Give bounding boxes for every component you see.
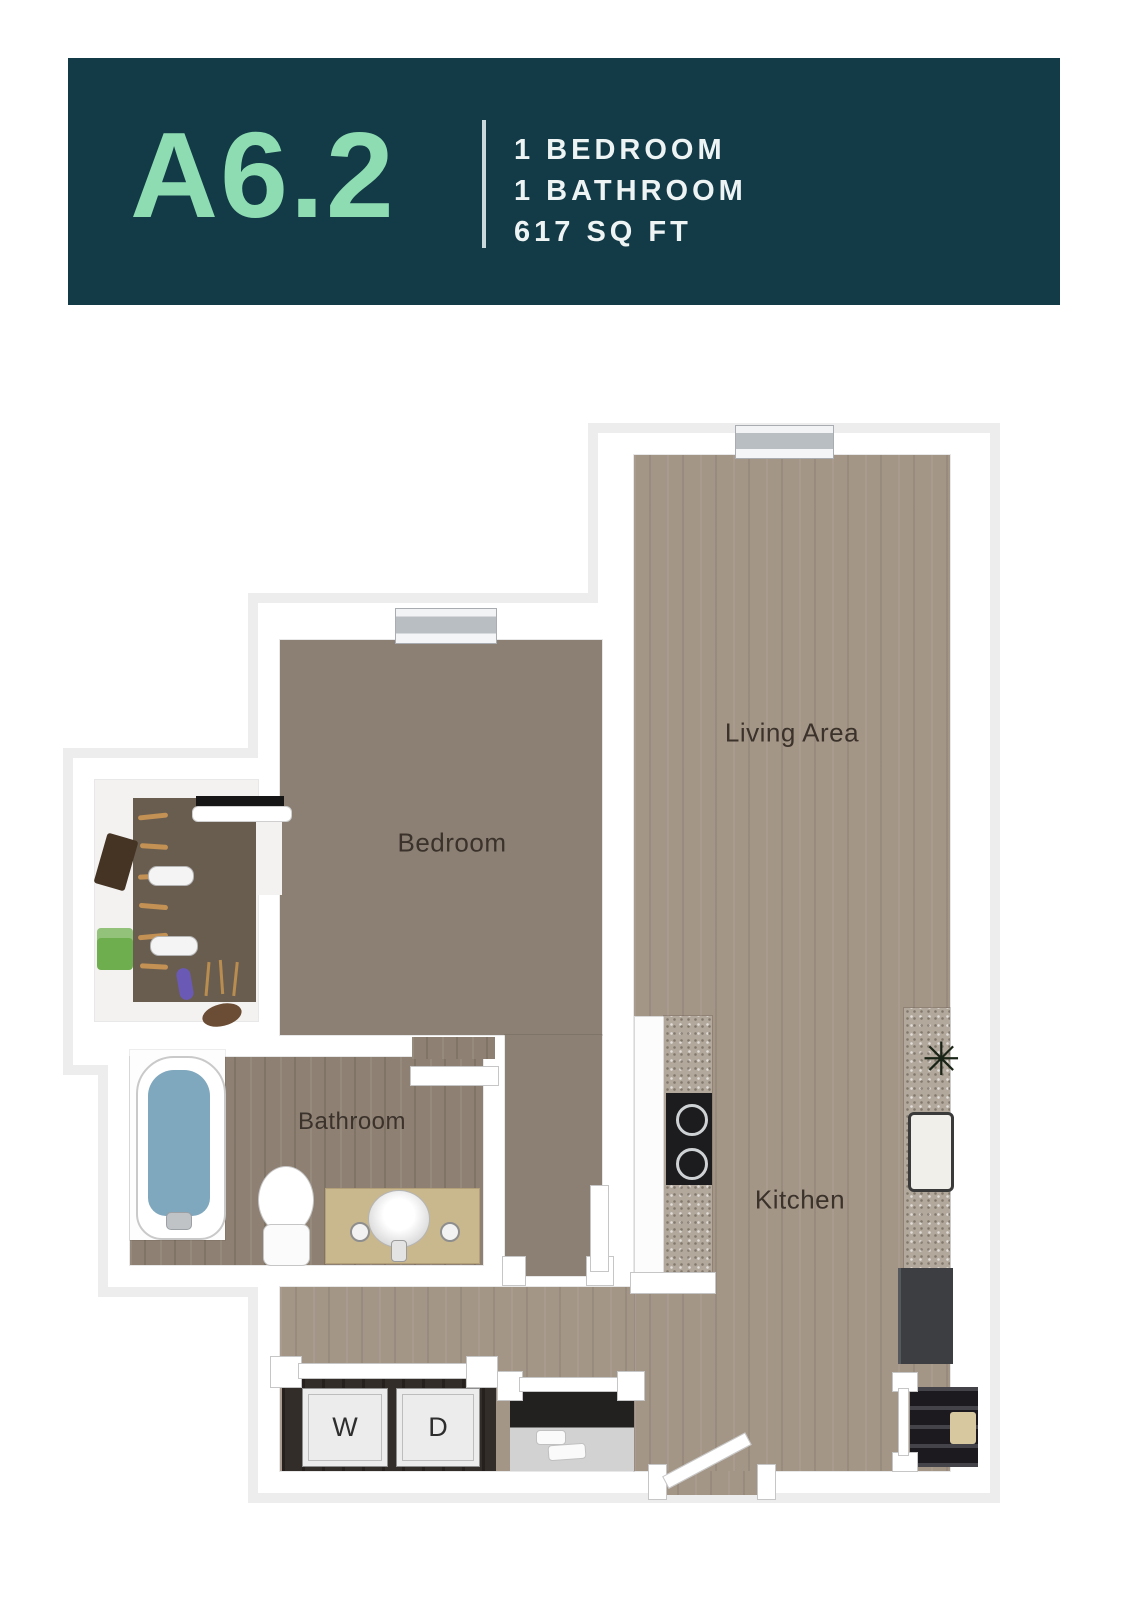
- washer-label: W: [332, 1412, 357, 1443]
- living-window: [735, 425, 834, 459]
- counter-end-panel: [630, 1272, 716, 1294]
- closet-shoes: [150, 936, 198, 956]
- faucet-handle-icon: [350, 1222, 370, 1242]
- washer: W: [302, 1388, 388, 1467]
- bathtub-water: [148, 1070, 210, 1216]
- kitchen-cabinet-left: [634, 1016, 666, 1294]
- refrigerator: [898, 1268, 953, 1364]
- burner-icon: [676, 1148, 708, 1180]
- detail-bedrooms: 1 BEDROOM: [514, 130, 747, 171]
- bedroom-window: [395, 608, 497, 644]
- folded-shirt: [97, 928, 133, 970]
- linen-sliding-door: [519, 1377, 621, 1392]
- header-banner: A6.2 1 BEDROOM 1 BATHROOM 617 SQ FT: [68, 58, 1060, 305]
- laundry-sliding-door: [298, 1363, 470, 1379]
- closet-rod: [192, 806, 292, 822]
- detail-bathrooms: 1 BATHROOM: [514, 171, 747, 212]
- detail-area: 617 SQ FT: [514, 212, 747, 253]
- bathroom-label: Bathroom: [298, 1108, 406, 1136]
- door-jamb: [757, 1464, 776, 1500]
- vestibule-floor: [505, 1035, 602, 1276]
- pantry-door: [898, 1388, 909, 1456]
- bathroom-door-opening: [412, 1037, 495, 1059]
- vanity-faucet-icon: [391, 1240, 407, 1262]
- toilet-tank: [263, 1224, 310, 1266]
- plan-name: A6.2: [130, 80, 396, 270]
- tub-faucet-icon: [166, 1212, 192, 1230]
- towel: [536, 1430, 566, 1445]
- bedroom-label: Bedroom: [398, 828, 507, 859]
- header-divider: [482, 120, 486, 248]
- pantry-box: [950, 1412, 976, 1444]
- closet-shoes: [148, 866, 194, 886]
- door-jamb: [466, 1356, 498, 1388]
- dryer: D: [396, 1388, 480, 1467]
- door-jamb: [502, 1256, 526, 1286]
- towel: [547, 1443, 586, 1462]
- closet-door-opening: [256, 818, 282, 895]
- door-jamb: [617, 1371, 645, 1401]
- floor-plan-page: A6.2 1 BEDROOM 1 BATHROOM 617 SQ FT: [0, 0, 1126, 1600]
- kitchen-label: Kitchen: [755, 1185, 845, 1216]
- living-area-label: Living Area: [725, 718, 859, 749]
- burner-icon: [676, 1104, 708, 1136]
- faucet-handle-icon: [440, 1222, 460, 1242]
- bathroom-door: [410, 1066, 499, 1086]
- plan-details: 1 BEDROOM 1 BATHROOM 617 SQ FT: [514, 130, 747, 253]
- kitchen-sink: [908, 1112, 954, 1192]
- plant-icon: ✳: [922, 1036, 961, 1082]
- dryer-label: D: [428, 1412, 448, 1443]
- bedroom-door: [590, 1185, 609, 1272]
